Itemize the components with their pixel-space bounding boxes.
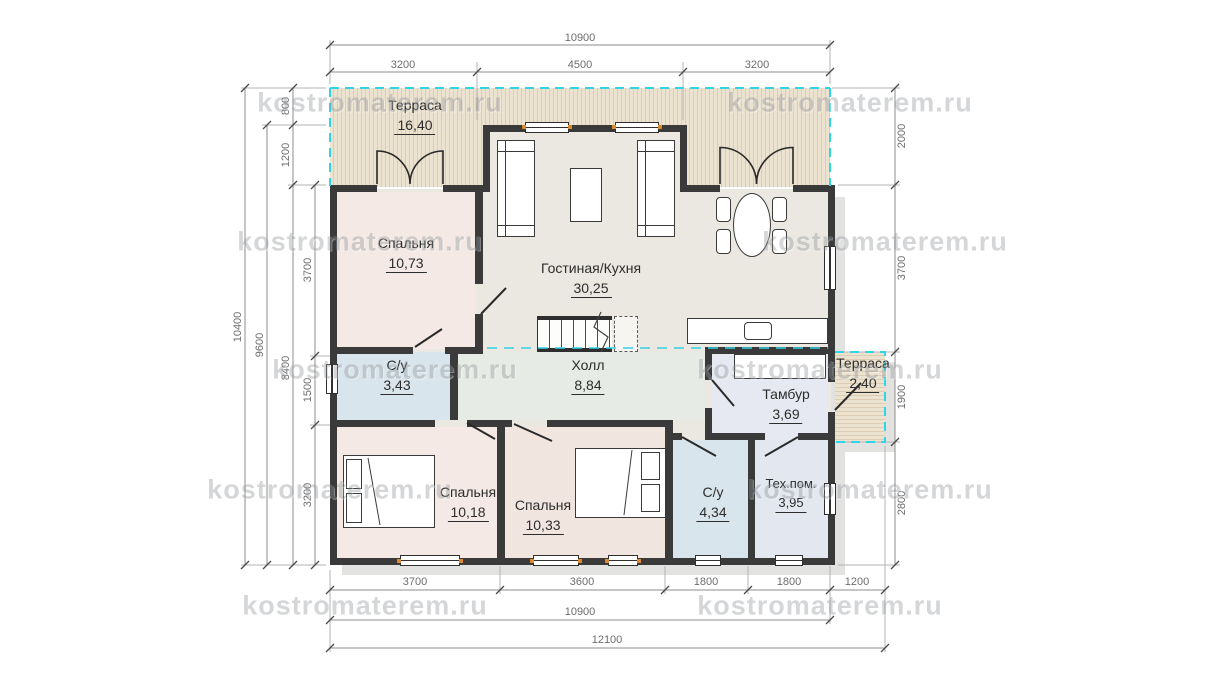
room-name: С/у	[696, 484, 729, 500]
room-name: Спальня	[440, 484, 496, 500]
room-label-wc-2: С/у 4,34	[696, 484, 729, 522]
room-area: 10,73	[385, 255, 426, 273]
room-label-terrace-right: Терраса 2,40	[836, 355, 890, 393]
dim-left-inner: 3200	[302, 483, 314, 507]
dim-bottom-inner-total: 10900	[565, 606, 596, 618]
room-label-tech: Тех.пом. 3,95	[765, 477, 816, 513]
room-name: Холл	[571, 357, 604, 373]
bed-fold-lines	[368, 450, 632, 525]
room-area: 10,18	[447, 504, 488, 522]
dim-left-chain: 1200	[280, 143, 292, 167]
dimension-ticks	[241, 41, 899, 652]
dim-bottom-seg: 1800	[694, 576, 718, 588]
stair-break-line	[594, 312, 608, 352]
room-name: Спальня	[378, 235, 434, 251]
room-label-hall: Холл 8,84	[571, 357, 604, 395]
room-name: Гостиная/Кухня	[541, 260, 641, 276]
dim-right-seg: 1900	[896, 385, 908, 409]
dim-right-seg: 2800	[896, 491, 908, 515]
dim-bottom-seg: 1200	[845, 576, 869, 588]
room-area: 3,69	[769, 406, 802, 424]
room-name: С/у	[380, 357, 413, 373]
dim-bottom-seg: 1800	[777, 576, 801, 588]
room-label-bedroom-2: Спальня 10,18	[440, 484, 496, 522]
dim-left-chain: 8400	[280, 356, 292, 380]
dim-right-seg: 3700	[896, 256, 908, 280]
french-door-terrace-living	[720, 148, 793, 185]
room-area: 3,43	[380, 377, 413, 395]
room-label-living-kitchen: Гостиная/Кухня 30,25	[541, 260, 641, 298]
room-area: 10,33	[522, 517, 563, 535]
extension-lines	[241, 40, 900, 652]
dim-left-mid: 9600	[254, 333, 266, 357]
dim-top-seg: 3200	[745, 59, 769, 71]
dim-top-total: 10900	[565, 32, 596, 44]
door-leaves	[415, 288, 861, 456]
dim-left-chain: 800	[280, 97, 292, 115]
dim-left-inner: 3700	[302, 258, 314, 282]
french-door-terrace-bedroom	[377, 151, 443, 184]
room-area: 2,40	[846, 375, 879, 393]
dim-left-overall: 10400	[232, 312, 244, 343]
dim-top-seg: 4500	[568, 59, 592, 71]
room-label-bedroom-3: Спальня 10,33	[515, 497, 571, 535]
dim-bottom-seg: 3700	[403, 576, 427, 588]
room-name: Тех.пом.	[765, 477, 816, 492]
room-name: Терраса	[836, 355, 890, 371]
room-label-terrace-top: Терраса 16,40	[388, 97, 442, 135]
dim-left-inner: 1500	[302, 378, 314, 402]
room-area: 3,95	[775, 496, 806, 513]
room-name: Спальня	[515, 497, 571, 513]
floor-plan-canvas: Терраса 16,40 Спальня 10,73 Гостиная/Кух…	[0, 0, 1214, 683]
room-label-bedroom-master: Спальня 10,73	[378, 235, 434, 273]
dim-top-seg: 3200	[391, 59, 415, 71]
room-area: 16,40	[394, 117, 435, 135]
room-label-tambour: Тамбур 3,69	[762, 386, 810, 424]
room-area: 8,84	[571, 377, 604, 395]
room-name: Терраса	[388, 97, 442, 113]
room-area: 4,34	[696, 504, 729, 522]
room-label-wc-1: С/у 3,43	[380, 357, 413, 395]
dim-bottom-seg: 3600	[570, 576, 594, 588]
dim-right-seg: 2000	[896, 124, 908, 148]
plan-linework	[0, 0, 1214, 683]
room-name: Тамбур	[762, 386, 810, 402]
room-area: 30,25	[570, 280, 611, 298]
dimension-lines	[245, 45, 895, 648]
dim-bottom-overall: 12100	[592, 634, 623, 646]
